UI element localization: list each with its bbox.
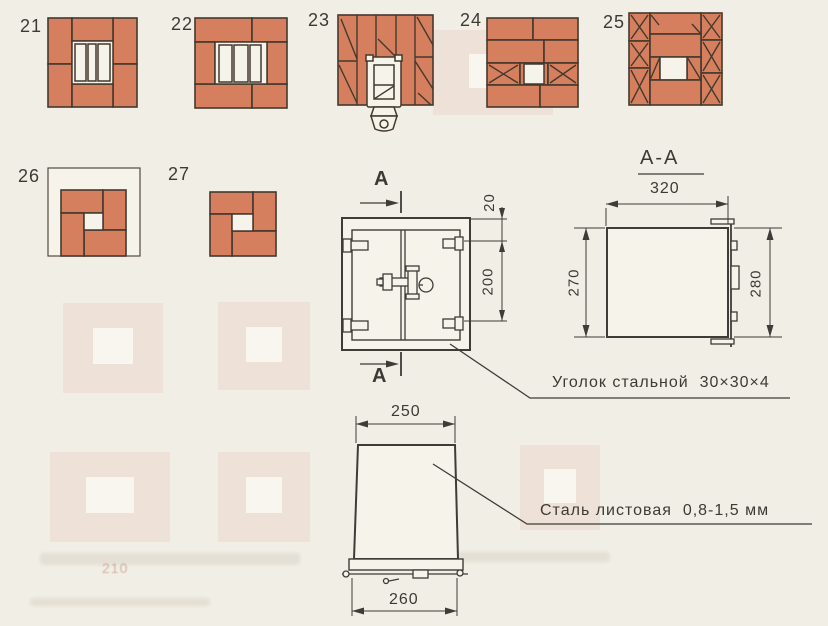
section-title: А-А <box>640 147 679 170</box>
course-24-diagram <box>487 18 578 107</box>
dim-20: 20 <box>481 193 498 212</box>
course-label-22: 22 <box>171 14 193 35</box>
section-letter-top: А <box>374 168 388 191</box>
dim-200: 200 <box>480 267 497 295</box>
dim-280: 280 <box>748 269 765 297</box>
course-23-diagram <box>338 15 433 131</box>
course-label-27: 27 <box>168 164 190 185</box>
course-label-24: 24 <box>460 10 482 31</box>
section-letter-bottom: А <box>372 365 386 388</box>
note-sheet-steel: Сталь листовая 0,8-1,5 мм <box>540 502 769 520</box>
course-22-diagram <box>195 18 287 108</box>
course-label-25: 25 <box>603 12 625 33</box>
course-label-26: 26 <box>18 166 40 187</box>
dim-270: 270 <box>566 268 583 296</box>
ghost-page-number: 210 <box>102 560 128 576</box>
dim-320: 320 <box>650 180 680 198</box>
scanned-figure-page: 21 22 23 24 25 26 27 А А 20 200 А-А 320 … <box>0 0 828 626</box>
course-27-diagram <box>210 192 276 256</box>
course-label-23: 23 <box>308 10 330 31</box>
damper-frame <box>366 55 402 131</box>
dim-260: 260 <box>389 591 419 609</box>
course-25-diagram <box>629 13 722 105</box>
section-view-a-a <box>574 174 782 347</box>
course-21-diagram <box>48 18 137 107</box>
course-label-21: 21 <box>20 16 42 37</box>
course-26-diagram <box>48 168 140 256</box>
dim-250: 250 <box>391 403 421 421</box>
figure-line-art <box>0 0 828 626</box>
note-angle-steel: Уголок стальной 30×30×4 <box>552 374 770 392</box>
